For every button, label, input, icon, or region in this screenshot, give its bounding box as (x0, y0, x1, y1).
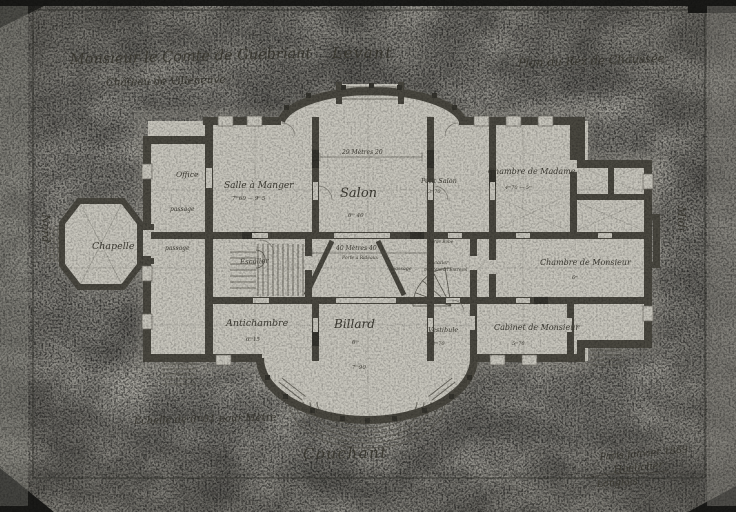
floorplan-photo: Monsieur le Comte de Guébriant Château d… (0, 0, 736, 512)
grain-overlay (0, 0, 736, 512)
